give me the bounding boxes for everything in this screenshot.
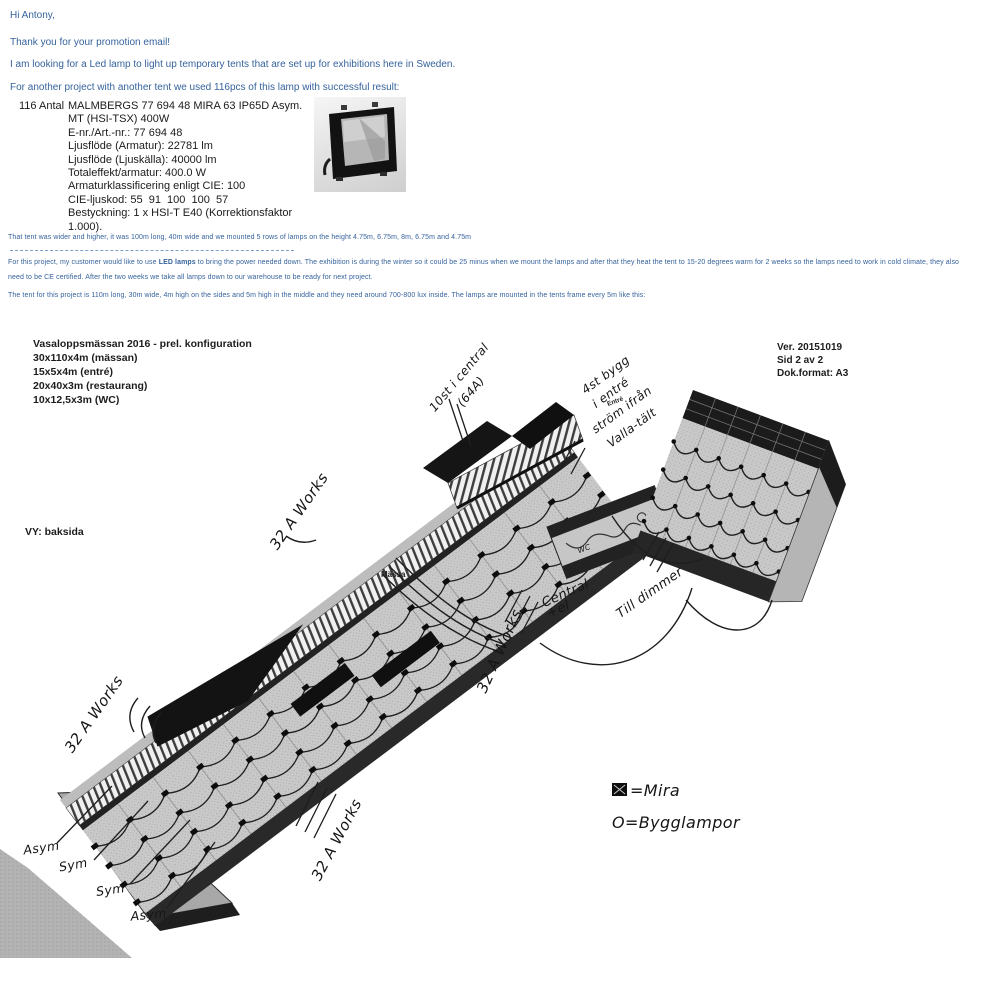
spec-block: MALMBERGS 77 694 48 MIRA 63 IP65D Asym. … [68,100,302,234]
view-label: VY: baksida [25,526,84,538]
email-thanks: Thank you for your promotion email! [10,37,170,49]
spec-line: CIE-ljuskod: 55 91 100 100 57 [68,194,302,207]
config-line-wc: 10x12,5x3m (WC) [33,394,119,406]
hw-32a-works-2: 32 A Works [61,672,127,756]
legend-bygglampor-label: O=Bygglampor [612,813,741,832]
legend-mira-label: =Mira [630,781,680,800]
legend: =Mira O=Bygglampor [612,781,741,832]
product-image-mira-floodlight [314,97,406,192]
page-label: Sid 2 av 2 [777,355,824,366]
spec-line: Armaturklassificering enligt CIE: 100 [68,180,302,193]
version-label: Ver. 20151019 [777,342,843,353]
spec-line: Totaleffekt/armatur: 400.0 W [68,167,302,180]
diagram-title: Vasaloppsmässan 2016 - prel. konfigurati… [33,338,252,350]
tent-diagram: Vasaloppsmässan 2016 - prel. konfigurati… [0,330,1000,1000]
spec-quantity: 116 Antal [19,100,64,112]
email-tent2-description: The tent for this project is 110m long, … [8,289,645,303]
spec-line: Bestyckning: 1 x HSI-T E40 (Korrektionsf… [68,207,302,220]
massa-label: Mässa [381,570,406,579]
config-line-entre: 15x5x4m (entré) [33,366,113,378]
project-text-led-bold: LED lamps [159,259,196,266]
hw-asym-1: Asym [21,838,60,858]
spec-line: Ljusflöde (Ljuskälla): 40000 lm [68,154,302,167]
hw-sym-2: Sym [95,880,126,899]
project-text-after: to bring the power needed down. The exhi… [196,259,959,266]
email-page: Hi Antony, Thank you for your promotion … [0,0,1000,1000]
email-project-requirements-line1: For this project, my customer would like… [8,256,959,270]
hw-till-dimmer: Till dimmer [614,564,687,622]
config-line-restaurang: 20x40x3m (restaurang) [33,380,147,392]
spec-line: E-nr./Art.-nr.: 77 694 48 [68,127,302,140]
spec-line: MT (HSI-TSX) 400W [68,113,302,126]
spec-line: MALMBERGS 77 694 48 MIRA 63 IP65D Asym. [68,100,302,113]
email-project-requirements-line2: need to be CE certified. After the two w… [8,271,373,285]
spec-line: Ljusflöde (Armatur): 22781 lm [68,140,302,153]
email-intro: I am looking for a Led lamp to light up … [10,59,455,71]
email-previous-project: For another project with another tent we… [10,82,399,94]
email-tent1-description: That tent was wider and higher, it was 1… [8,231,471,245]
floodlight-graphic [314,97,406,192]
project-text-before: For this project, my customer would like… [8,259,159,266]
separator-dashes [10,250,294,251]
config-line-massan: 30x110x4m (mässan) [33,352,138,364]
hw-sym-1: Sym [58,855,89,875]
hw-32a-works-1: 32 A Works [266,469,332,553]
format-label: Dok.format: A3 [777,368,849,379]
main-tent-massan [49,416,650,929]
email-greeting: Hi Antony, [10,10,55,22]
